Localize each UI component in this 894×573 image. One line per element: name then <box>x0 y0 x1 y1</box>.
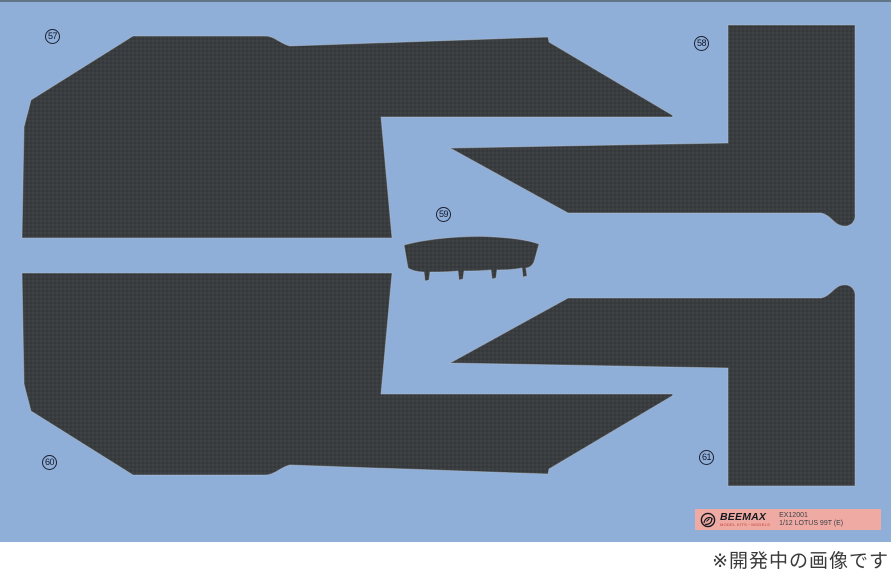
brand-subtitle: MODEL KITS・MODELS <box>720 523 770 527</box>
development-note: ※開発中の画像です <box>712 546 889 573</box>
product-label: BEEMAX MODEL KITS・MODELS EX12001 1/12 LO… <box>695 509 881 530</box>
part-number-60: 60 <box>42 455 57 470</box>
product-code: EX12001 <box>779 512 843 520</box>
product-image: 57 58 59 60 61 BEEMAX MODEL KITS・MODELS … <box>0 0 894 573</box>
carbon-pieces-layer <box>0 0 894 573</box>
part-number-58: 58 <box>694 36 709 51</box>
brand-name: BEEMAX <box>720 512 770 523</box>
part-number-57: 57 <box>45 29 60 44</box>
part-number-61: 61 <box>699 450 714 465</box>
beemax-logo-icon <box>700 512 716 528</box>
carbon-piece-59 <box>404 236 539 281</box>
part-number-59: 59 <box>436 207 451 222</box>
product-name: 1/12 LOTUS 99T (E) <box>779 520 843 528</box>
